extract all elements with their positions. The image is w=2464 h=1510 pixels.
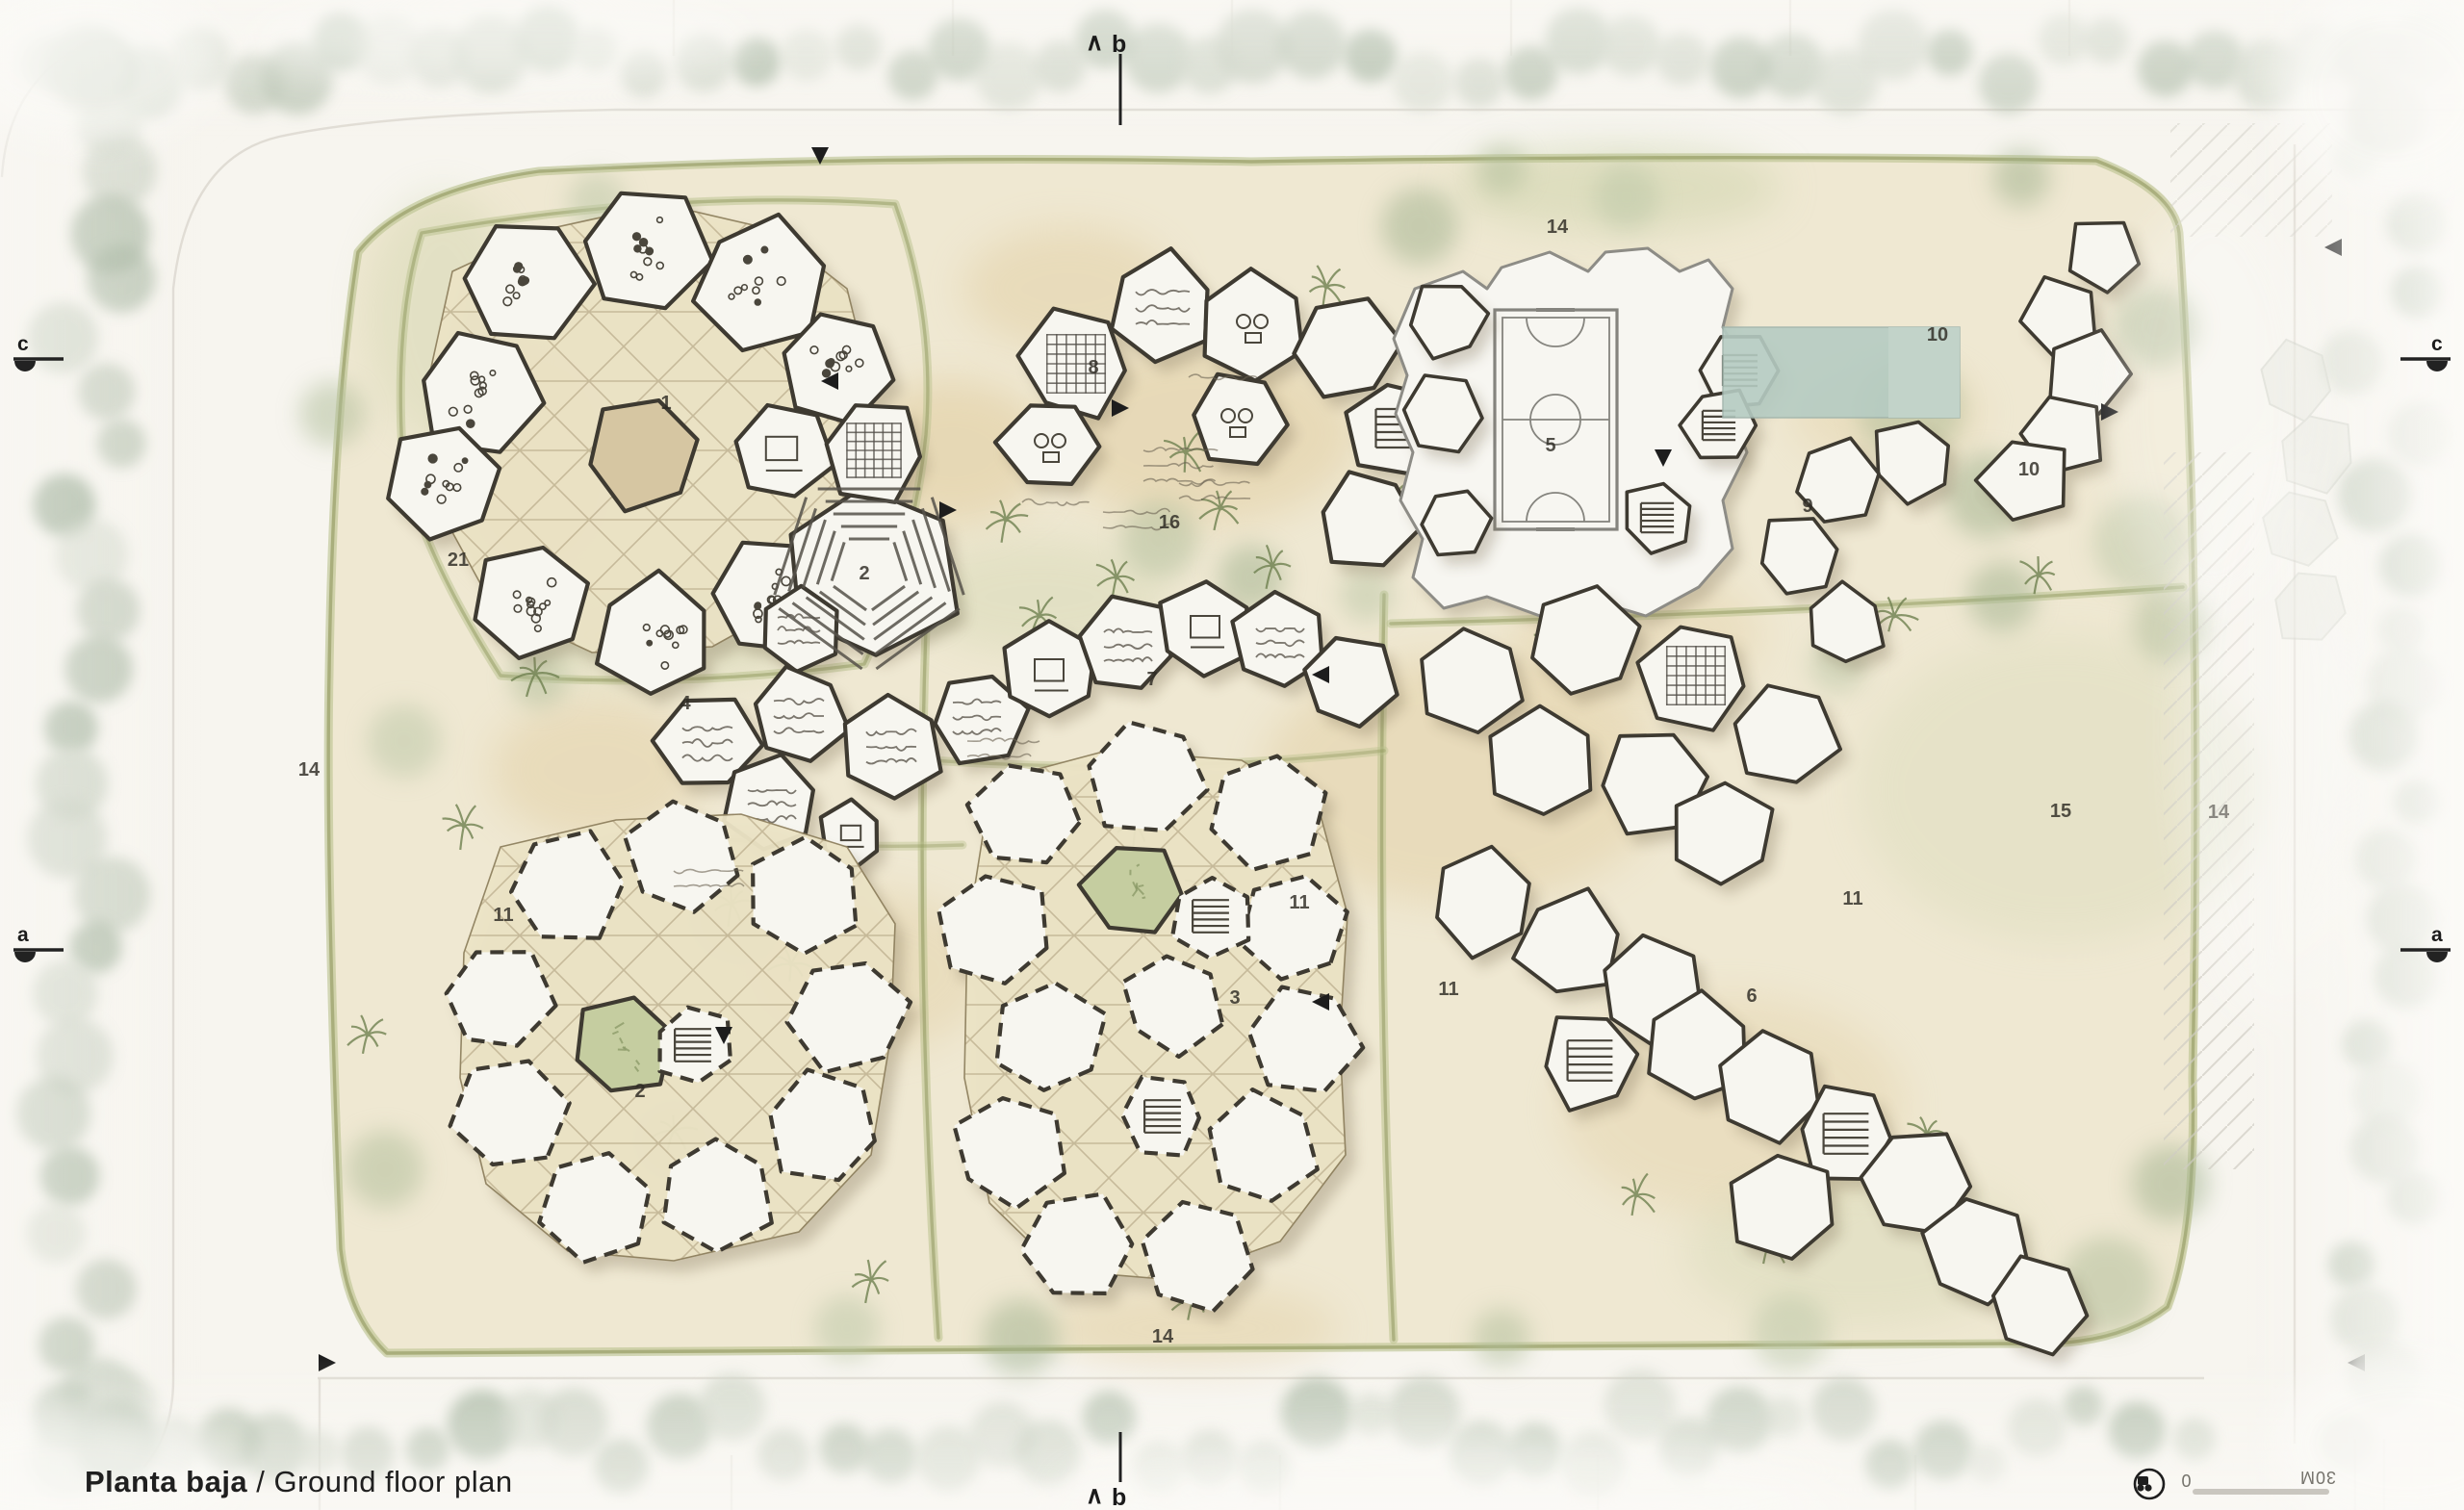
plan-title-primary: Planta baja xyxy=(85,1465,247,1498)
plan-label: 9 xyxy=(1802,496,1812,517)
section-caret: ∧ xyxy=(1086,1482,1103,1509)
section-letter: b xyxy=(1112,31,1126,58)
plan-label: 10 xyxy=(1927,324,1948,346)
scale-end-label: 30M xyxy=(2299,1468,2336,1487)
scale-start-label: 0 xyxy=(2180,1471,2191,1490)
plan-label: 16 xyxy=(1159,512,1180,533)
plan-label: 2 xyxy=(634,1081,645,1102)
plan-label: 14 xyxy=(1547,217,1569,238)
plan-label: 11 xyxy=(1842,888,1862,909)
plan-label: 15 xyxy=(2050,801,2071,822)
scale-bar-line xyxy=(2193,1489,2329,1495)
section-letter: c xyxy=(17,333,29,355)
plan-label: 2 xyxy=(859,563,869,584)
site-plan-svg: 121281647591010112113116111514141414 ∧ b… xyxy=(0,0,2464,1510)
section-letter: c xyxy=(2431,333,2443,355)
plan-label: 1 xyxy=(660,393,671,414)
section-caret: ∧ xyxy=(1086,29,1103,56)
plan-label: 11 xyxy=(1438,979,1458,1000)
plan-label: 4 xyxy=(680,693,691,714)
plan-title-secondary: Ground floor plan xyxy=(274,1465,513,1498)
plan-label: 11 xyxy=(493,905,513,926)
section-letter: a xyxy=(17,924,29,946)
plan-label: 10 xyxy=(2018,459,2040,480)
plan-label: 5 xyxy=(1545,435,1555,456)
plan-title: Planta baja / Ground floor plan xyxy=(85,1465,513,1499)
section-letter: b xyxy=(1112,1484,1126,1510)
plan-label: 14 xyxy=(1152,1326,1174,1347)
swimming-pool xyxy=(1723,327,1960,418)
plan-label: 14 xyxy=(298,759,321,781)
plan-title-separator: / xyxy=(247,1465,273,1498)
plan-label: 11 xyxy=(1289,892,1309,913)
plan-label: 3 xyxy=(1229,987,1240,1009)
plan-label: 8 xyxy=(1088,357,1098,378)
plan-label: 7 xyxy=(1146,669,1157,690)
site-plan-canvas: 121281647591010112113116111514141414 ∧ b… xyxy=(0,0,2464,1510)
plan-label: 21 xyxy=(448,550,469,571)
section-letter: a xyxy=(2431,924,2443,946)
plan-label: 6 xyxy=(1746,985,1757,1007)
